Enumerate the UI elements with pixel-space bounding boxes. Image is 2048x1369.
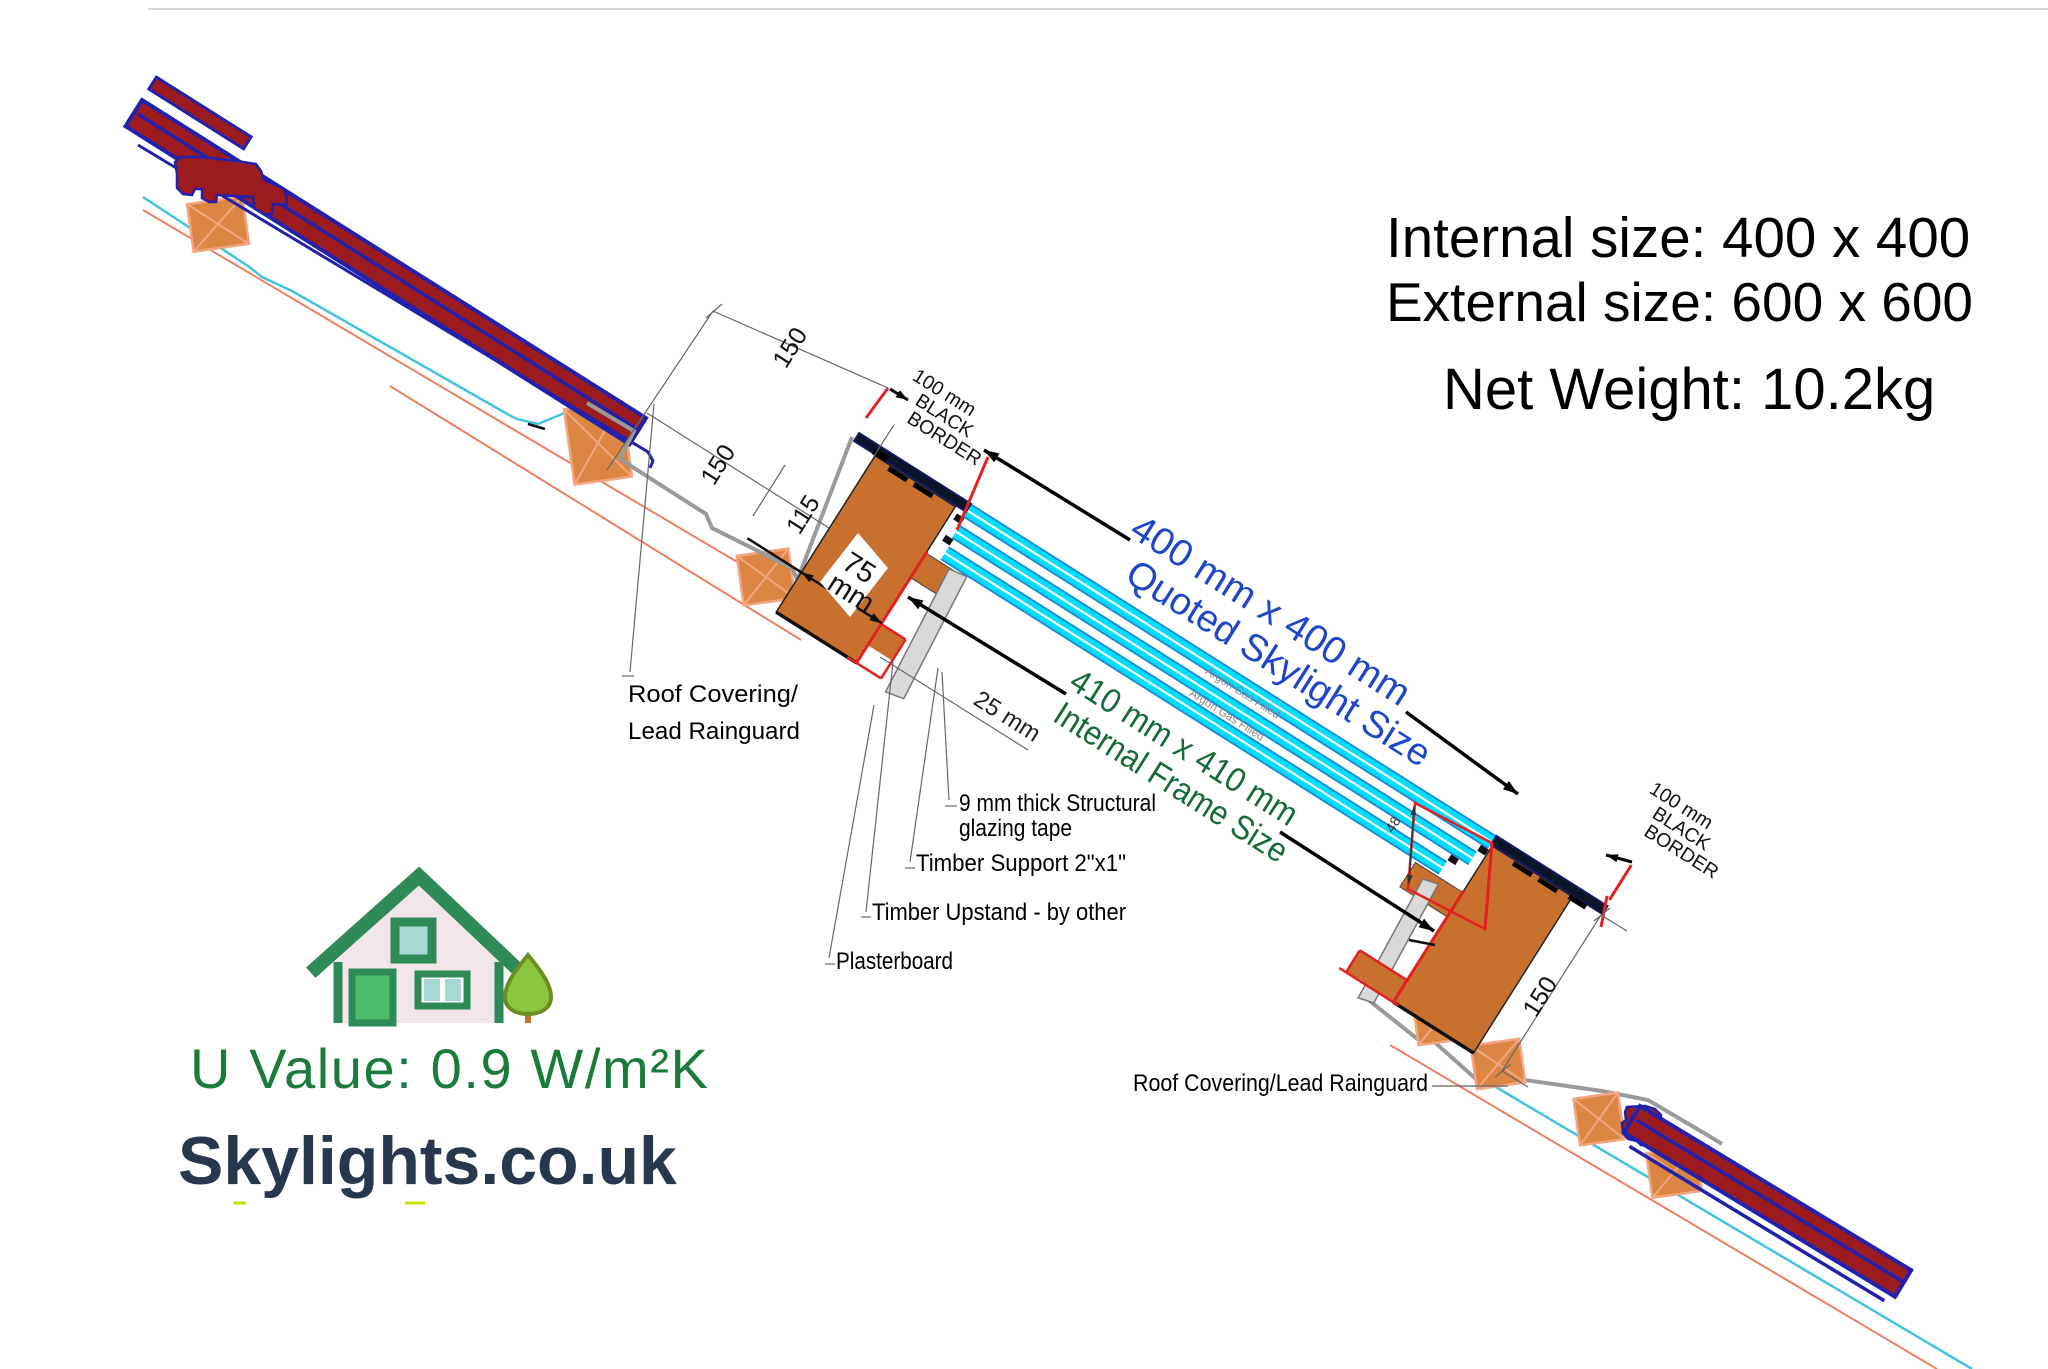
svg-text:Roof Covering/: Roof Covering/ xyxy=(628,681,798,708)
svg-text:Lead Rainguard: Lead Rainguard xyxy=(628,718,800,745)
svg-text:Net Weight: 10.2kg: Net Weight: 10.2kg xyxy=(1443,357,1935,422)
svg-text:Skylights.co.uk: Skylights.co.uk xyxy=(178,1123,677,1199)
svg-text:Roof Covering/Lead Rainguard: Roof Covering/Lead Rainguard xyxy=(1133,1070,1428,1097)
svg-text:Plasterboard: Plasterboard xyxy=(836,948,953,975)
svg-text:External size: 600 x 600: External size: 600 x 600 xyxy=(1386,271,1973,333)
svg-text:U Value: 0.9 W/m²K: U Value: 0.9 W/m²K xyxy=(190,1037,709,1100)
svg-text:Timber Support 2"x1": Timber Support 2"x1" xyxy=(916,850,1126,877)
svg-text:glazing tape: glazing tape xyxy=(959,815,1072,842)
svg-text:Timber Upstand - by other: Timber Upstand - by other xyxy=(872,899,1126,926)
svg-text:Internal size: 400 x 400: Internal size: 400 x 400 xyxy=(1386,206,1970,269)
svg-text:9 mm thick Structural: 9 mm thick Structural xyxy=(959,790,1156,817)
